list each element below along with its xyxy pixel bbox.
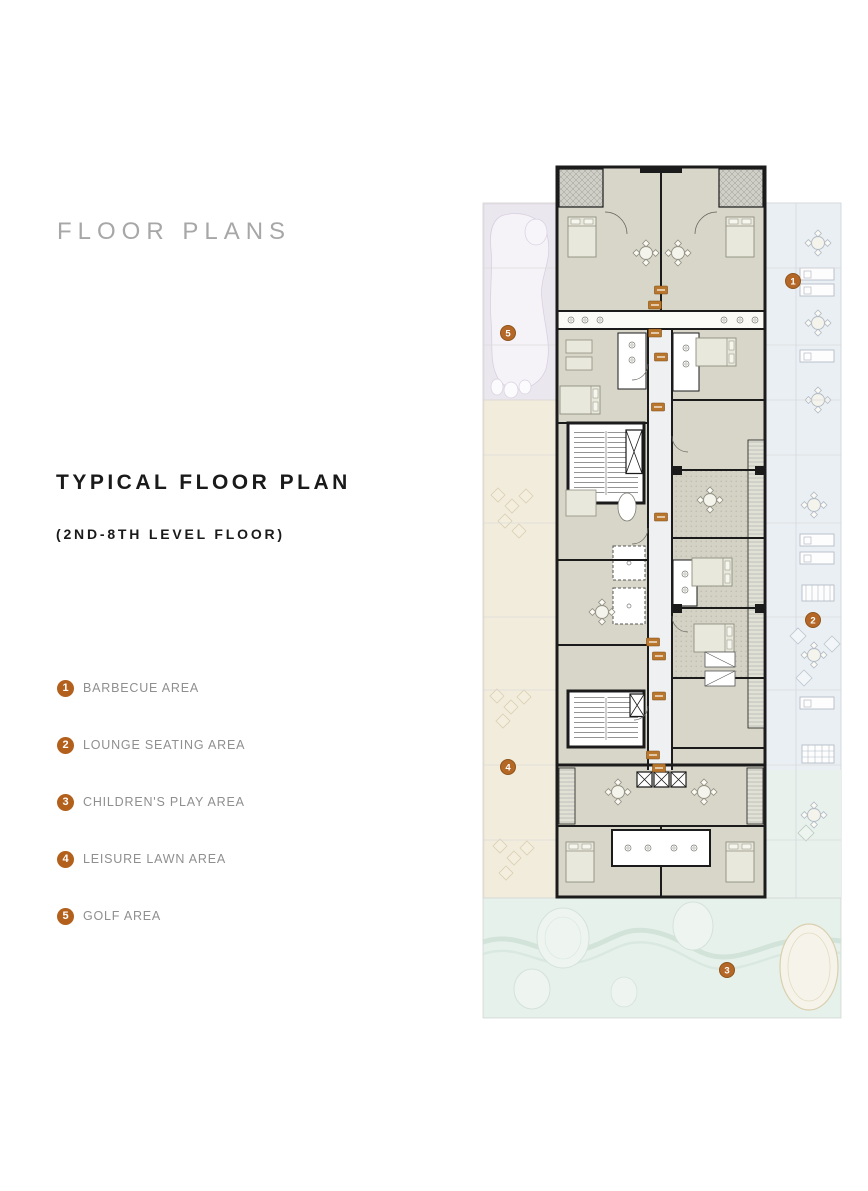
bed-icon (726, 842, 754, 882)
unit-tag (655, 286, 668, 294)
unit-tag (652, 403, 665, 411)
svg-text:2: 2 (810, 615, 815, 626)
unit-tag (647, 638, 660, 646)
bed-icon (568, 217, 596, 257)
bed-icon (726, 217, 754, 257)
unit-tag (655, 513, 668, 521)
svg-text:1: 1 (790, 276, 796, 287)
bed-icon (566, 842, 594, 882)
unit-tag (655, 353, 668, 361)
floor-plan-drawing: 1 2 3 4 5 (0, 0, 868, 1191)
bed-icon (560, 386, 600, 414)
leisure-lawn-strip (484, 400, 556, 898)
plan-marker-childrens-play: 3 (720, 963, 735, 978)
unit-tag (647, 751, 660, 759)
plan-marker-lounge: 2 (806, 613, 821, 628)
plan-marker-barbecue: 1 (786, 274, 801, 289)
unit-tag (653, 652, 666, 660)
svg-text:5: 5 (505, 328, 511, 339)
plan-marker-leisure-lawn: 4 (501, 760, 516, 775)
svg-text:4: 4 (505, 762, 511, 773)
floor-plan-page: FLOOR PLANS TYPICAL FLOOR PLAN (2ND-8TH … (0, 0, 868, 1191)
tower (557, 167, 765, 897)
barbecue-strip (766, 203, 841, 898)
play-area (483, 898, 841, 1018)
bed-icon (696, 338, 736, 366)
bed-icon (694, 624, 734, 652)
unit-tag (649, 301, 662, 309)
svg-text:3: 3 (724, 965, 729, 976)
unit-tag (649, 329, 662, 337)
elevator-icon (626, 430, 642, 474)
bed-icon (692, 558, 732, 586)
plan-marker-golf: 5 (501, 326, 516, 341)
unit-tag (653, 692, 666, 700)
elevator-icon (630, 694, 644, 717)
unit-tag (653, 764, 666, 772)
